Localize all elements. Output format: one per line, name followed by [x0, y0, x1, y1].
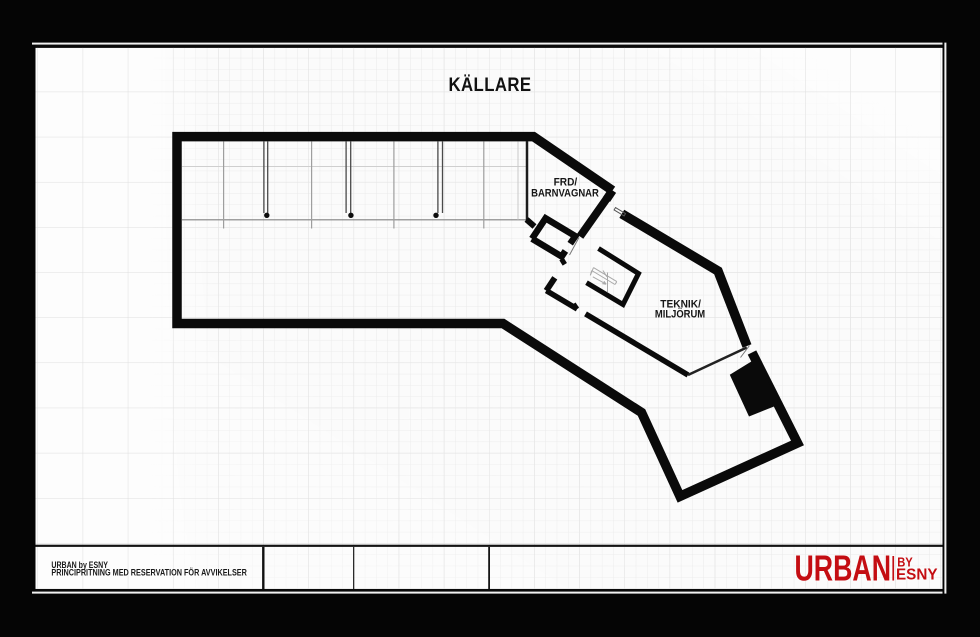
svg-text:ESNY: ESNY: [896, 567, 938, 584]
svg-text:MILJÖRUM: MILJÖRUM: [655, 307, 705, 320]
svg-text:KÄLLARE: KÄLLARE: [449, 73, 532, 96]
svg-text:URBAN: URBAN: [795, 549, 892, 589]
svg-text:BARNVAGNAR: BARNVAGNAR: [531, 188, 599, 200]
svg-text:PRINCIPRITNING MED RESERVATION: PRINCIPRITNING MED RESERVATION FÖR AVVIK…: [51, 568, 247, 578]
